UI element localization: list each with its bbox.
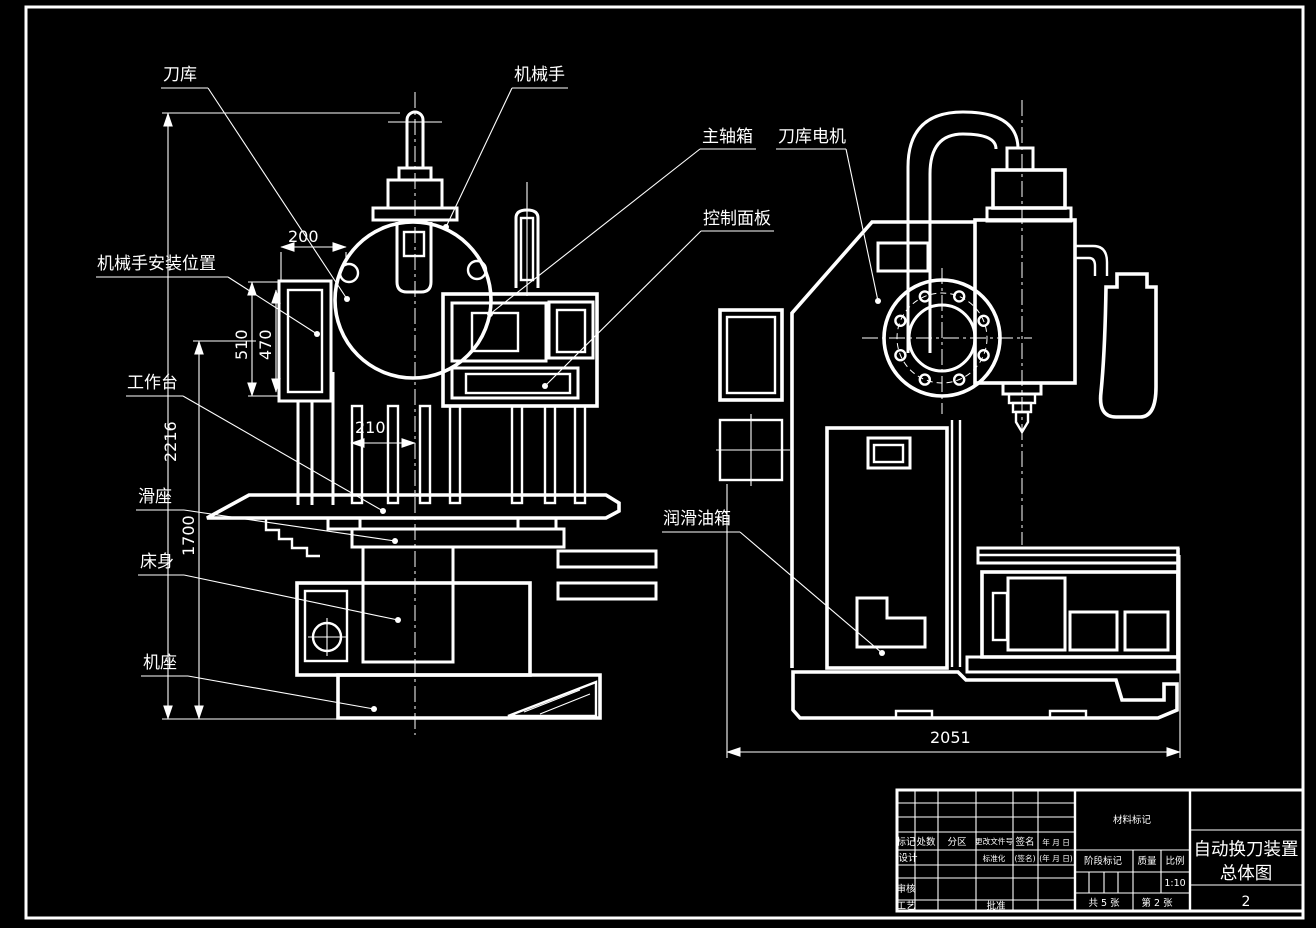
svg-text:470: 470 xyxy=(256,329,275,360)
label-tool-magazine: 刀库 xyxy=(163,65,197,85)
label-manipulator: 机械手 xyxy=(514,65,565,85)
tb-mark: 标记 xyxy=(896,836,916,848)
tb-total-sheets: 共 5 张 xyxy=(1088,898,1120,909)
callout-control-panel: 控制面板 xyxy=(542,209,774,389)
label-spindle-box: 主轴箱 xyxy=(702,127,753,147)
tb-title-line2: 总体图 xyxy=(1220,864,1273,884)
callout-labels: 刀库 机械手 主轴箱 刀库电机 控制面板 机械手安装位置 xyxy=(96,65,885,712)
lube-oil-tank xyxy=(857,598,925,647)
tb-drawing-no: 2 xyxy=(1242,894,1251,910)
tool-magazine-disc xyxy=(335,222,491,378)
dim-1700: 1700 xyxy=(179,341,256,719)
base-side xyxy=(793,672,1177,718)
saddle-front xyxy=(352,529,564,547)
title-block: 材料标记 标记 处数 分区 更改文件号 签名 年 月 日 设计 标准化 (签名)… xyxy=(896,790,1303,912)
label-base: 机座 xyxy=(143,653,177,673)
callout-manipulator: 机械手 xyxy=(443,65,568,230)
dim-210: 210 xyxy=(351,418,415,443)
cad-drawing-sheet: 刀库 机械手 主轴箱 刀库电机 控制面板 机械手安装位置 xyxy=(0,0,1316,928)
svg-text:2051: 2051 xyxy=(930,728,971,747)
label-lube-tank: 润滑油箱 xyxy=(663,509,731,529)
tb-date-paren: (年 月 日) xyxy=(1039,853,1073,863)
tb-change-file-no: 更改文件号 xyxy=(975,836,1013,846)
tb-design: 设计 xyxy=(898,852,918,864)
label-control-panel: 控制面板 xyxy=(703,209,771,229)
spindle-box-side xyxy=(975,220,1075,383)
tb-standardization: 标准化 xyxy=(983,853,1006,863)
label-saddle: 滑座 xyxy=(138,487,172,507)
tb-title-line1: 自动换刀装置 xyxy=(1194,840,1299,860)
tb-material-mark: 材料标记 xyxy=(1113,814,1152,826)
callout-manipulator-mount: 机械手安装位置 xyxy=(96,254,320,337)
magazine-motor xyxy=(993,170,1065,208)
svg-text:200: 200 xyxy=(288,227,319,246)
side-view-geometry xyxy=(716,100,1178,718)
svg-text:2216: 2216 xyxy=(161,421,180,462)
tb-process: 工艺 xyxy=(896,901,915,912)
tb-sheet-number: 第 2 张 xyxy=(1141,897,1173,909)
tb-stage-mark: 阶段标记 xyxy=(1084,855,1123,867)
sheet-border xyxy=(26,7,1303,918)
svg-text:1700: 1700 xyxy=(179,515,198,556)
svg-text:210: 210 xyxy=(355,418,386,437)
tb-weight: 质量 xyxy=(1137,855,1157,867)
tb-date: 年 月 日 xyxy=(1042,837,1070,847)
svg-text:510: 510 xyxy=(232,329,251,360)
worktable-front xyxy=(207,495,619,518)
tb-zone: 分区 xyxy=(947,837,967,848)
label-manipulator-mount: 机械手安装位置 xyxy=(97,254,216,274)
manipulator-mount-plate xyxy=(279,281,331,401)
label-worktable: 工作台 xyxy=(127,373,178,393)
callout-lube-tank: 润滑油箱 xyxy=(662,509,885,656)
tb-scale-value: 1:10 xyxy=(1164,878,1185,889)
tb-scale: 比例 xyxy=(1165,855,1184,867)
drawing-canvas: 刀库 机械手 主轴箱 刀库电机 控制面板 机械手安装位置 xyxy=(0,0,1316,928)
tb-signature: 签名 xyxy=(1015,836,1034,848)
dim-200: 200 xyxy=(281,227,346,280)
label-magazine-motor: 刀库电机 xyxy=(778,127,846,147)
tb-approve: 批准 xyxy=(986,900,1006,912)
callout-magazine-motor: 刀库电机 xyxy=(776,127,881,304)
tb-signature-paren: (签名) xyxy=(1014,853,1035,863)
cable-loop xyxy=(908,112,1018,353)
label-bed: 床身 xyxy=(140,552,174,572)
counterweight-bottle xyxy=(1101,274,1156,417)
tb-count: 处数 xyxy=(916,836,936,848)
tb-check: 审核 xyxy=(896,883,916,895)
